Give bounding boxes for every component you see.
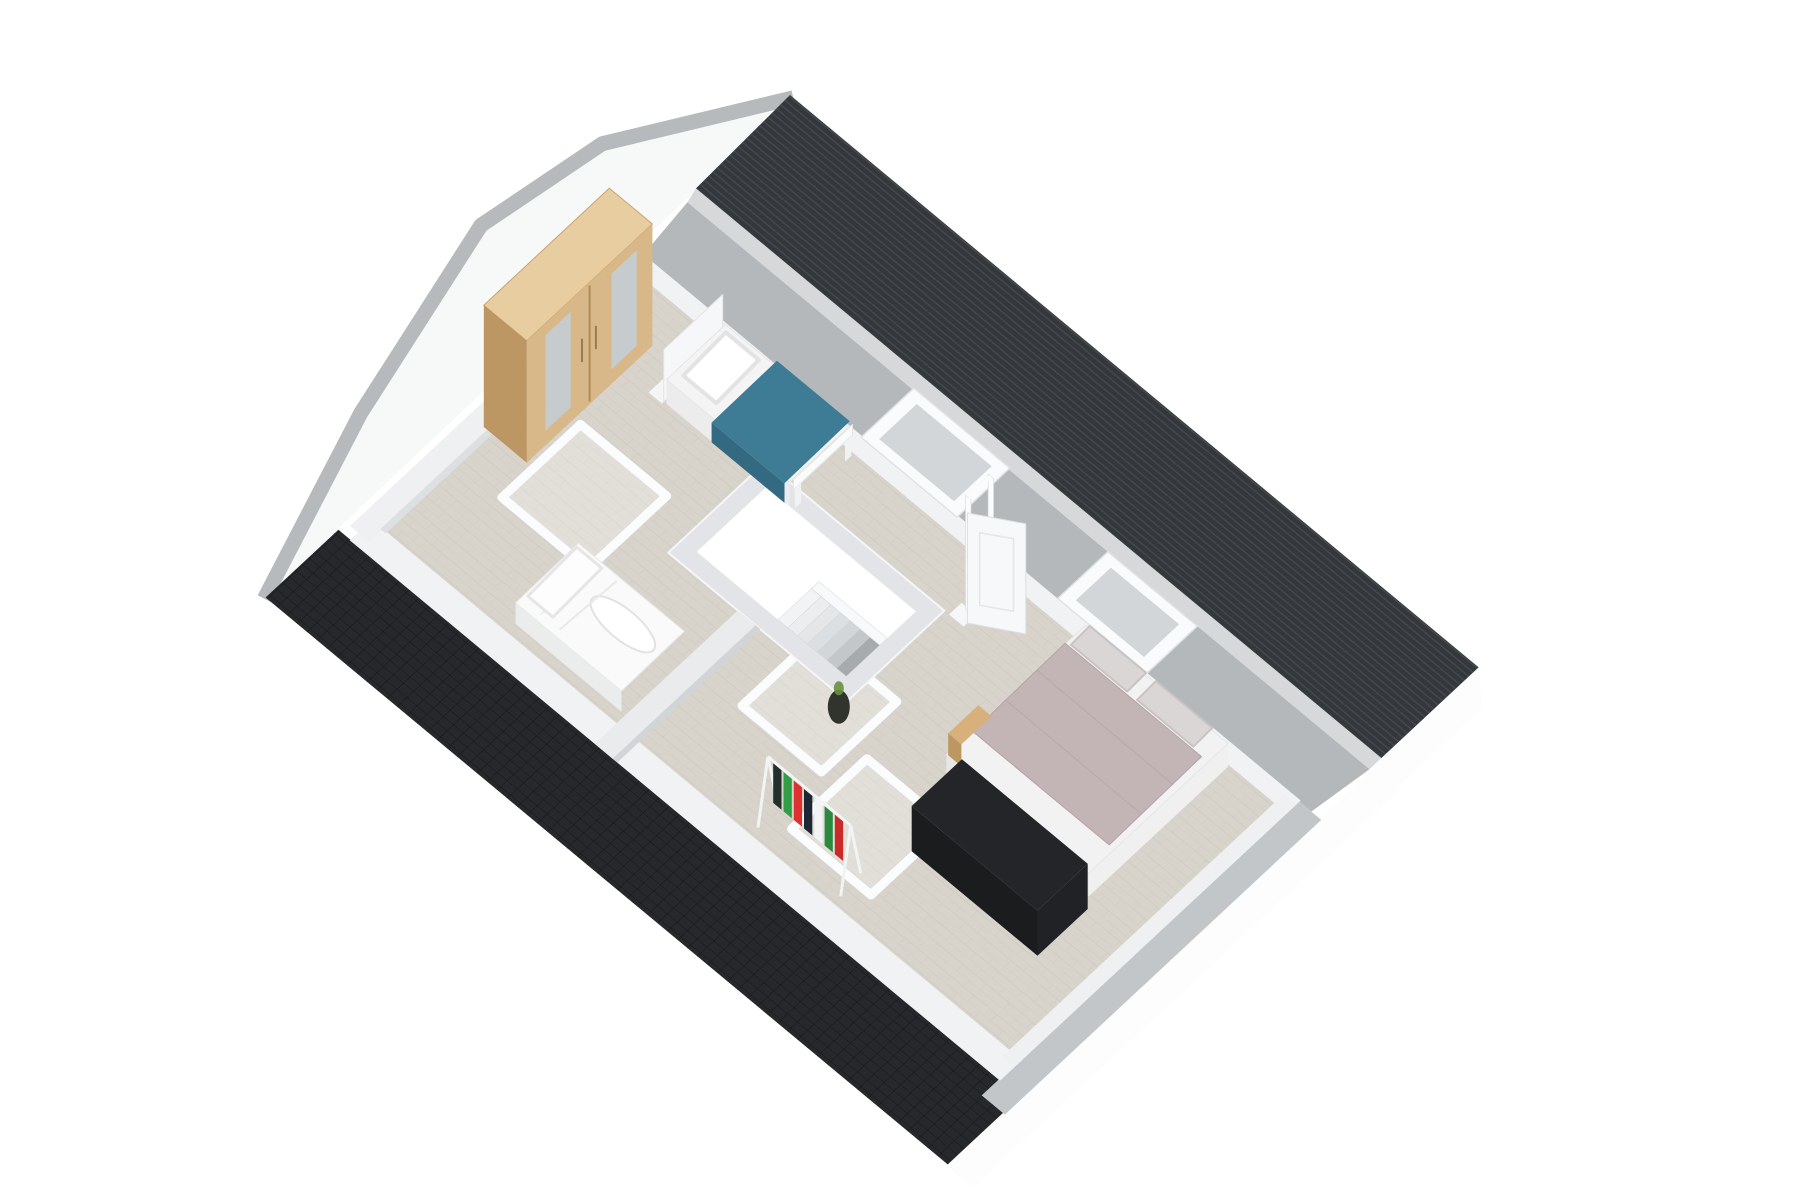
hanging-garment: [784, 772, 792, 818]
hanging-garment: [804, 789, 812, 835]
hanging-garment: [794, 781, 802, 827]
floorplan-3d-render: [0, 0, 1803, 1200]
potted-plant-leaf: [834, 681, 844, 695]
hanging-garment: [814, 798, 822, 844]
hanging-garment: [825, 806, 833, 852]
hanging-garment: [835, 815, 843, 861]
hanging-garment: [773, 763, 781, 809]
open-door-leaf: [967, 513, 1025, 634]
floorplan-page: [0, 0, 1803, 1200]
